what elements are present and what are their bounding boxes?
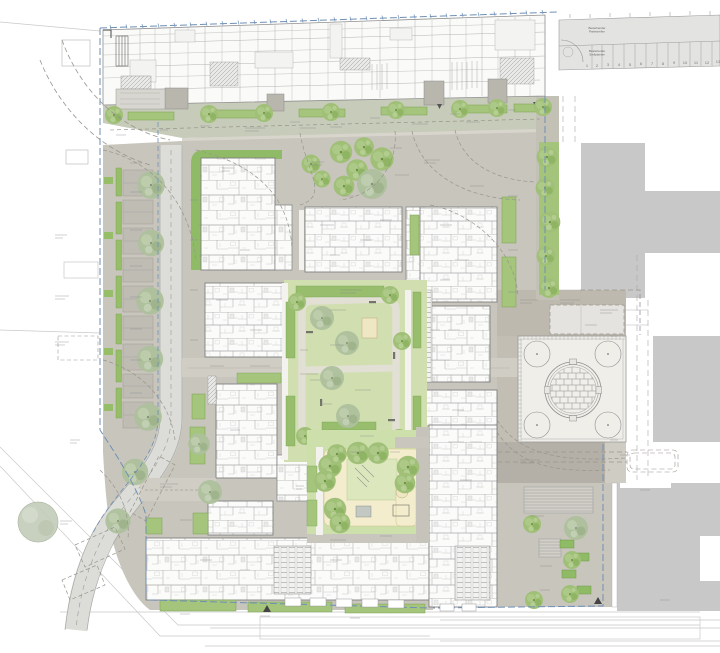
svg-text:10: 10: [683, 60, 688, 65]
svg-text:Parkstreifen: Parkstreifen: [589, 30, 605, 34]
svg-text:Stellplaetze: Stellplaetze: [589, 53, 605, 57]
svg-text:12: 12: [705, 60, 710, 65]
svg-text:13: 13: [716, 59, 720, 64]
